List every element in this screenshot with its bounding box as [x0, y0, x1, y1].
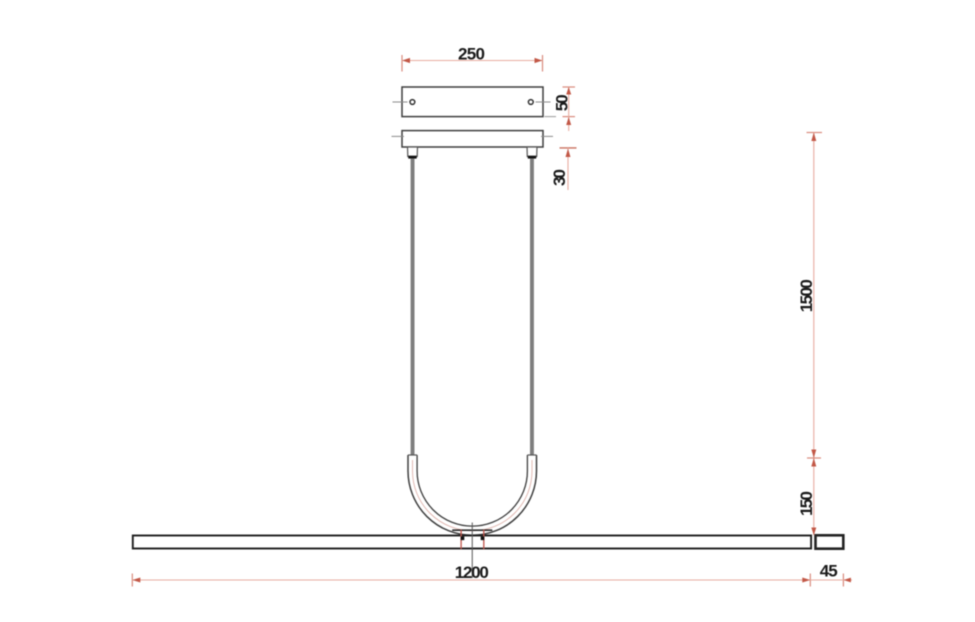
- svg-text:150: 150: [797, 491, 816, 516]
- svg-text:50: 50: [552, 94, 571, 111]
- svg-text:250: 250: [458, 45, 485, 64]
- svg-text:45: 45: [820, 561, 838, 580]
- svg-text:30: 30: [550, 169, 569, 186]
- svg-text:1200: 1200: [455, 563, 489, 582]
- svg-text:1500: 1500: [797, 279, 816, 312]
